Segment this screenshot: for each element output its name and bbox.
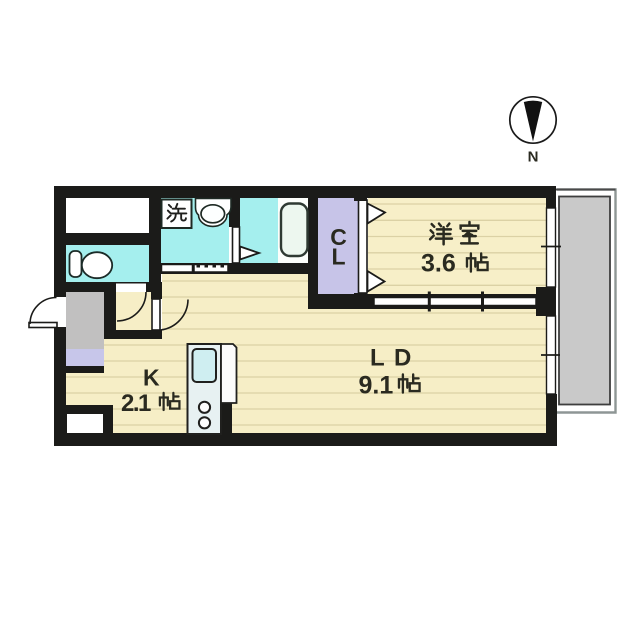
svg-text:L: L xyxy=(331,244,345,270)
svg-text:D: D xyxy=(394,345,411,372)
svg-text:K: K xyxy=(143,365,160,391)
svg-text:3.6: 3.6 xyxy=(421,250,456,278)
svg-text:2.1: 2.1 xyxy=(121,390,151,417)
svg-text:9.1: 9.1 xyxy=(359,372,394,400)
svg-text:N: N xyxy=(528,149,539,166)
svg-text:L: L xyxy=(370,345,385,372)
